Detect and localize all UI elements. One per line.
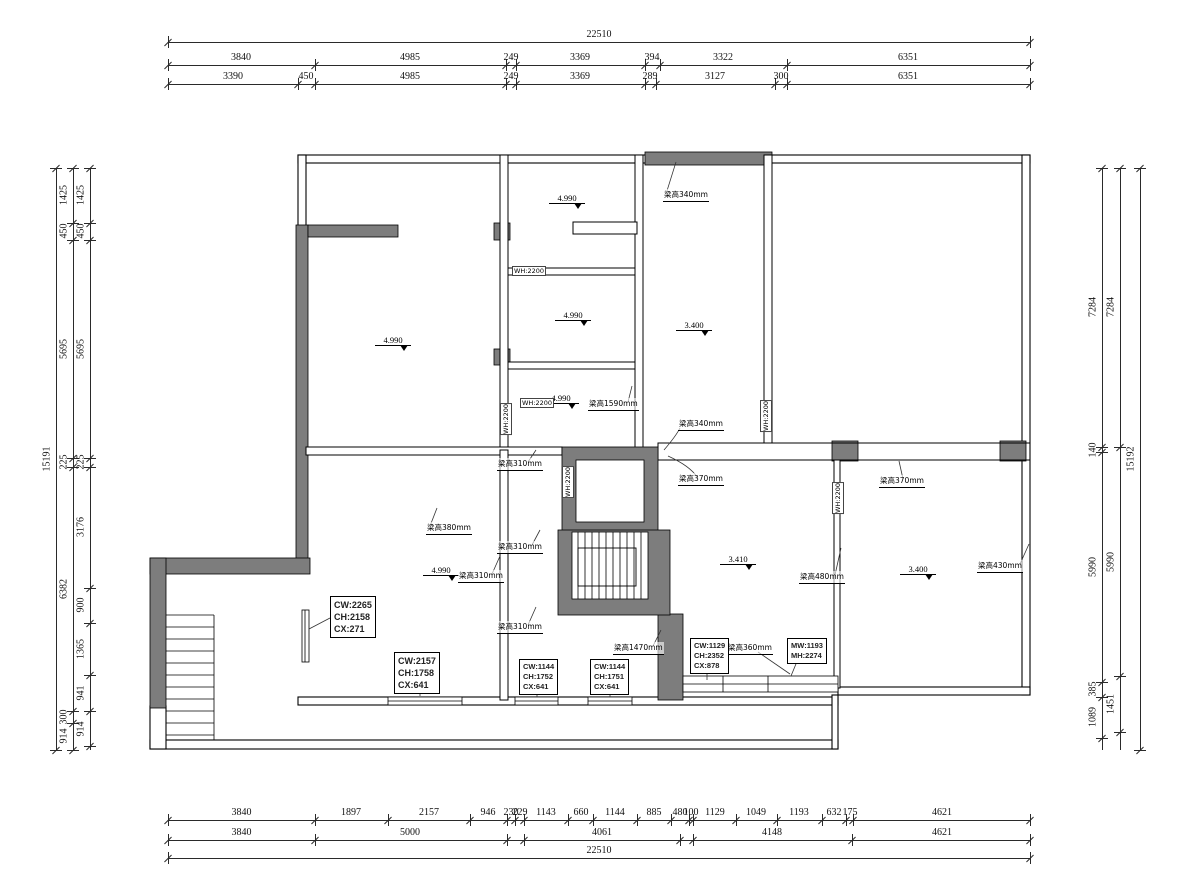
wall-stub-topleft: [308, 225, 398, 237]
wall-bottom-main: [298, 697, 838, 705]
dim-label: 3369: [570, 52, 590, 63]
level-triangle-icon: [568, 403, 576, 409]
beam-label: 梁高370mm: [879, 475, 925, 488]
dim-label: 229: [513, 807, 528, 818]
level-marker: 3.410: [720, 554, 756, 565]
dim-label: 385: [1088, 682, 1099, 697]
wh-label: WH:2200: [562, 466, 574, 498]
exterior-stairs: [166, 615, 214, 740]
beam-label: 梁高380mm: [426, 522, 472, 535]
spec-line: CW:2265: [334, 599, 372, 611]
dim-label: 900: [76, 598, 87, 613]
dim-label: 15191: [42, 447, 53, 472]
dim-line: [1120, 168, 1121, 750]
floor-plan-canvas: 4.990 4.990 4.990 4.990 4.990 3.400 3.41…: [0, 0, 1200, 889]
spec-line: CX:641: [398, 679, 436, 691]
dim-label: 3840: [231, 52, 251, 63]
level-value: 3.410: [728, 554, 747, 564]
dim-label: 289: [643, 71, 658, 82]
dim-label: 15192: [1126, 447, 1137, 472]
dim-label: 1897: [341, 807, 361, 818]
dim-label: 394: [645, 52, 660, 63]
wall-shaft-lower: [658, 614, 683, 700]
level-triangle-icon: [448, 575, 456, 581]
beam-label: 梁高310mm: [497, 458, 543, 471]
dim-label: 1193: [789, 807, 809, 818]
dim-label: 175: [843, 807, 858, 818]
beam-label: 梁高1470mm: [613, 642, 664, 655]
dim-line: [168, 820, 1030, 821]
dim-label: 3322: [713, 52, 733, 63]
opening-spec-box: CW:1129 CH:2352 CX:878: [690, 638, 729, 674]
spec-line: CH:1752: [523, 672, 554, 682]
dim-label: 6382: [59, 579, 70, 599]
spec-line: CW:2157: [398, 655, 436, 667]
dim-label: 4061: [592, 827, 612, 838]
dim-label: 5990: [1106, 552, 1117, 572]
beam-label: 梁高430mm: [977, 560, 1023, 573]
dim-label: 450: [299, 71, 314, 82]
dim-label: 4148: [762, 827, 782, 838]
wall-terrace-left: [150, 558, 166, 708]
opening-spec-box: CW:2157 CH:1758 CX:641: [394, 652, 440, 694]
wall-terrace-top: [150, 558, 310, 574]
dim-label: 7284: [1106, 297, 1117, 317]
dim-label: 1425: [59, 185, 70, 205]
elevator-shaft: [562, 447, 658, 535]
spec-line: CH:2352: [694, 651, 725, 661]
wall-bottom-right: [838, 687, 1030, 695]
dim-label: 914: [76, 722, 87, 737]
dim-label: 946: [481, 807, 496, 818]
dim-label: 450: [59, 224, 70, 239]
dim-line: [168, 840, 1030, 841]
opening-spec-box: CW:1144 CH:1752 CX:641: [519, 659, 558, 695]
wall-interior-c: [508, 362, 635, 369]
thick-walls: [150, 152, 1026, 708]
spec-line: CH:1758: [398, 667, 436, 679]
dim-label: 6351: [898, 71, 918, 82]
dim-label: 660: [574, 807, 589, 818]
opening-spec-box: CW:1144 CH:1751 CX:641: [590, 659, 629, 695]
beam-label: 梁高340mm: [678, 418, 724, 431]
dim-label: 1129: [705, 807, 725, 818]
wh-label: WH:2200: [832, 482, 844, 514]
dim-label: 3127: [705, 71, 725, 82]
column-4: [1000, 441, 1026, 461]
wall-left-upper: [298, 155, 306, 227]
spec-line: CW:1129: [694, 641, 725, 651]
dim-label: 100: [684, 807, 699, 818]
dim-label: 4621: [932, 807, 952, 818]
dim-label: 4985: [400, 52, 420, 63]
spec-line: CX:641: [523, 682, 554, 692]
level-marker: 3.400: [900, 564, 936, 575]
windows: [302, 610, 838, 705]
spec-line: CX:878: [694, 661, 725, 671]
level-value: 4.990: [431, 565, 450, 575]
dim-label: 1425: [76, 185, 87, 205]
level-triangle-icon: [400, 345, 408, 351]
dim-line: [168, 858, 1030, 859]
dim-label: 1365: [76, 639, 87, 659]
dim-label: 4985: [400, 71, 420, 82]
dim-label: 7284: [1088, 297, 1099, 317]
dim-label: 6351: [898, 52, 918, 63]
opening-spec-box: CW:2265 CH:2158 CX:271: [330, 596, 376, 638]
dim-line: [1102, 168, 1103, 750]
dim-label: 3840: [232, 807, 252, 818]
level-triangle-icon: [745, 564, 753, 570]
spec-line: CX:271: [334, 623, 372, 635]
window-left: [302, 610, 309, 662]
dim-label: 22510: [587, 29, 612, 40]
spec-line: MH:2274: [791, 651, 823, 661]
level-marker: 4.990: [549, 193, 585, 204]
wall-connector: [832, 695, 838, 749]
floor-plan-svg: [0, 0, 1200, 889]
level-value: 4.990: [563, 310, 582, 320]
wh-label: WH:2200: [760, 400, 772, 432]
dim-label: 4621: [932, 827, 952, 838]
column-3: [832, 441, 858, 461]
dim-line: [168, 65, 1030, 66]
spec-line: CX:641: [594, 682, 625, 692]
level-triangle-icon: [580, 320, 588, 326]
dim-label: 3369: [570, 71, 590, 82]
dim-label: 3390: [223, 71, 243, 82]
stairwell: [558, 530, 670, 615]
beam-mid-left: [306, 447, 562, 455]
dim-label: 22510: [587, 845, 612, 856]
wh-label: WH:2200: [512, 266, 546, 276]
opening-spec-box: MW:1193 MH:2274: [787, 638, 827, 664]
level-marker: 4.990: [375, 335, 411, 346]
wh-label: WH:2200: [500, 403, 512, 435]
wall-right: [1022, 155, 1030, 695]
beam-label: 梁高1590mm: [588, 398, 639, 411]
dim-label: 1049: [746, 807, 766, 818]
dim-label: 249: [504, 52, 519, 63]
spec-line: CW:1144: [594, 662, 625, 672]
beam-label: 梁高480mm: [799, 571, 845, 584]
dim-line: [168, 42, 1030, 43]
level-value: 4.990: [557, 193, 576, 203]
dim-label: 225: [59, 455, 70, 470]
beam-label: 梁高310mm: [497, 541, 543, 554]
dim-label: 5695: [76, 339, 87, 359]
beam-label: 梁高310mm: [497, 621, 543, 634]
wall-top-thick: [645, 152, 772, 165]
beam-label: 梁高310mm: [458, 570, 504, 583]
level-marker: 4.990: [555, 310, 591, 321]
dim-label: 632: [827, 807, 842, 818]
dim-label: 300: [59, 710, 70, 725]
dim-line: [56, 168, 57, 750]
dim-label: 914: [59, 729, 70, 744]
spec-line: CH:2158: [334, 611, 372, 623]
level-value: 4.990: [383, 335, 402, 345]
dim-label: 450: [76, 224, 87, 239]
dim-label: 885: [647, 807, 662, 818]
dim-label: 300: [774, 71, 789, 82]
beam-label: 梁高340mm: [663, 189, 709, 202]
dim-label: 1144: [605, 807, 625, 818]
spec-line: MW:1193: [791, 641, 823, 651]
level-value: 4.990: [551, 393, 570, 403]
dim-label: 5000: [400, 827, 420, 838]
dim-label: 140: [1088, 443, 1099, 458]
dim-label: 249: [504, 71, 519, 82]
level-marker: 4.990: [423, 565, 459, 576]
level-triangle-icon: [574, 203, 582, 209]
level-value: 3.400: [908, 564, 927, 574]
wall-partition-stub: [573, 222, 637, 234]
dim-label: 3176: [76, 517, 87, 537]
level-triangle-icon: [925, 574, 933, 580]
dim-label: 2157: [419, 807, 439, 818]
dim-label: 1143: [536, 807, 556, 818]
stairwell-opening: [572, 532, 648, 599]
wall-terrace-bottom: [150, 740, 838, 749]
dim-label: 3840: [232, 827, 252, 838]
wh-label: WH:2200: [520, 398, 554, 408]
level-marker: 3.400: [676, 320, 712, 331]
spec-line: CW:1144: [523, 662, 554, 672]
beam-label: 梁高370mm: [678, 473, 724, 486]
wall-terrace-left-lower: [150, 706, 166, 749]
dim-label: 941: [76, 686, 87, 701]
dim-line: [1140, 168, 1141, 750]
dim-label: 225: [76, 455, 87, 470]
dim-label: 5695: [59, 339, 70, 359]
dim-label: 1089: [1088, 707, 1099, 727]
beam-label: 梁高360mm: [727, 642, 773, 655]
dim-label: 5990: [1088, 557, 1099, 577]
wall-left-thick: [296, 225, 308, 562]
level-triangle-icon: [701, 330, 709, 336]
level-value: 3.400: [684, 320, 703, 330]
dim-label: 1451: [1106, 694, 1117, 714]
elevator-cab: [576, 460, 644, 522]
spec-line: CH:1751: [594, 672, 625, 682]
